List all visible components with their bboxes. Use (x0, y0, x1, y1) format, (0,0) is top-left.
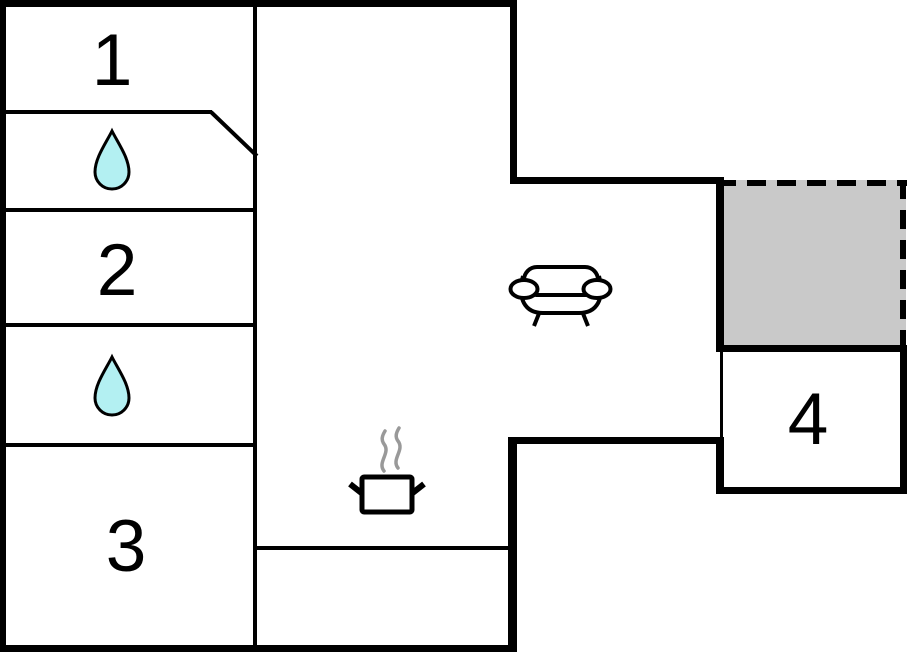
wall-room4-left-thin (720, 350, 723, 440)
wall-middle-right-upper (510, 0, 517, 184)
wall-outer-bottom (0, 645, 517, 652)
terrace-area (717, 180, 907, 348)
wall-terrace-bottom (716, 345, 907, 352)
divider-room1-bath1 (0, 110, 212, 114)
wall-room4-left-lower (716, 438, 724, 494)
wall-room4-right (900, 345, 907, 494)
wall-terrace-left (716, 177, 724, 352)
divider-bath2-room3 (0, 443, 257, 447)
room-2-label: 2 (97, 230, 138, 311)
divider-hall-bottom (253, 546, 517, 550)
room-4-label: 4 (788, 379, 829, 460)
terrace-floor (720, 180, 906, 348)
sofa-armrest-right (584, 280, 611, 298)
wall-outer-top (0, 0, 517, 7)
wall-living-bottom (508, 437, 724, 444)
room-3-label: 3 (106, 506, 147, 587)
room-1-label: 1 (92, 20, 133, 101)
floor-plan: 1 2 3 4 (0, 0, 908, 652)
divider-bath1-room2 (0, 208, 257, 212)
sofa-armrest-left (511, 280, 538, 298)
wall-room4-bottom (716, 487, 907, 494)
wall-middle-right-lower (508, 437, 517, 652)
wall-living-top (510, 177, 722, 184)
divider-room2-bath2 (0, 323, 257, 327)
floor-plan-svg: 1 2 3 4 (0, 0, 908, 652)
pot-body (362, 477, 412, 512)
